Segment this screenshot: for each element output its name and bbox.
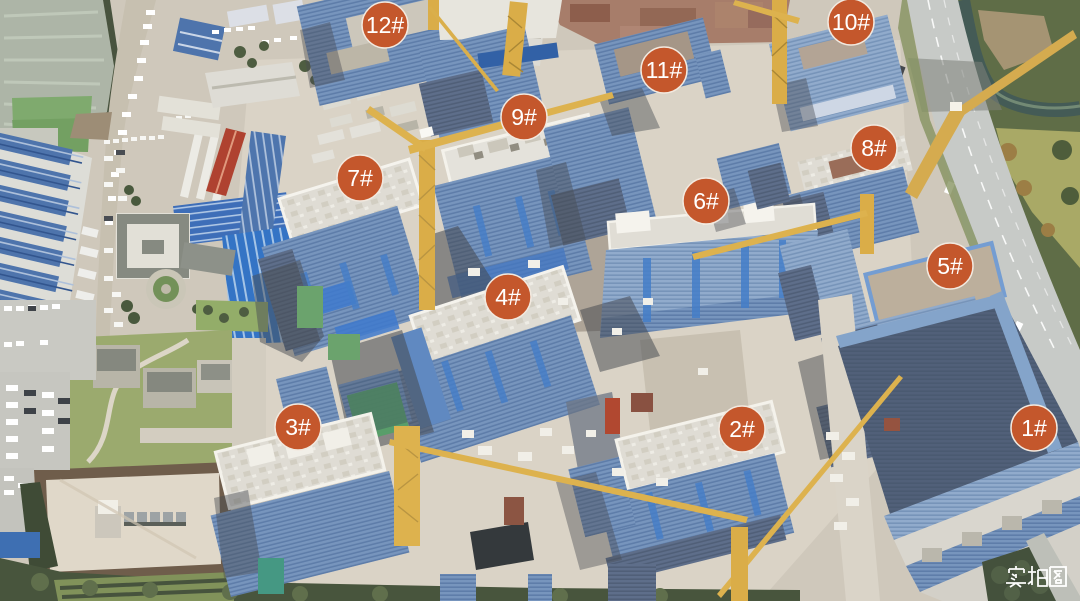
svg-text:4#: 4# — [495, 284, 521, 310]
svg-text:3#: 3# — [285, 414, 311, 440]
svg-text:2#: 2# — [729, 416, 755, 442]
svg-text:12#: 12# — [366, 12, 405, 38]
svg-text:11#: 11# — [646, 57, 683, 83]
svg-text:1#: 1# — [1021, 415, 1047, 441]
svg-text:9#: 9# — [511, 104, 537, 130]
svg-text:8#: 8# — [861, 135, 887, 161]
svg-text:6#: 6# — [693, 188, 719, 214]
svg-text:10#: 10# — [832, 9, 871, 35]
svg-text:5#: 5# — [937, 253, 963, 279]
svg-text:7#: 7# — [347, 165, 373, 191]
